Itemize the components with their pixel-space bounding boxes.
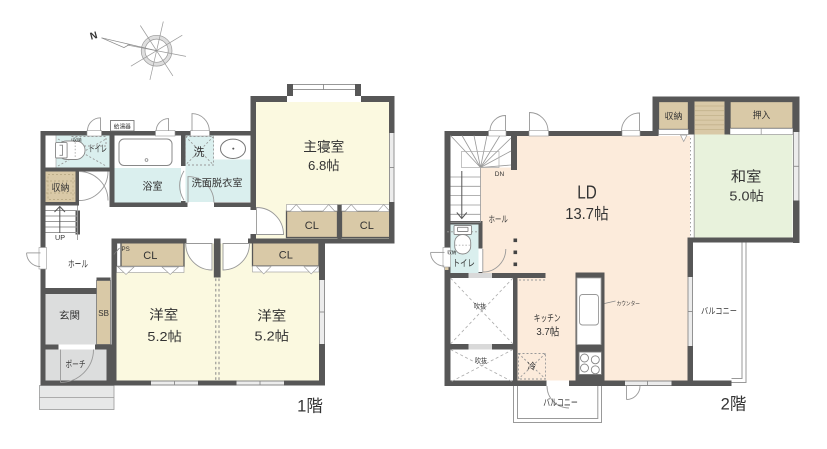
svg-text:CL: CL — [279, 249, 293, 261]
svg-text:カウンター: カウンター — [617, 300, 641, 308]
svg-text:玄関: 玄関 — [59, 309, 80, 322]
svg-text:2階: 2階 — [721, 394, 747, 413]
svg-text:洗: 洗 — [194, 145, 205, 158]
svg-text:DN: DN — [495, 171, 505, 178]
svg-text:洋室: 洋室 — [149, 306, 178, 322]
svg-text:冷: 冷 — [527, 360, 536, 371]
svg-text:収納: 収納 — [72, 137, 82, 144]
svg-text:CL: CL — [360, 220, 374, 232]
svg-text:バルコニー: バルコニー — [543, 398, 578, 409]
svg-text:ホール: ホール — [488, 214, 508, 224]
svg-text:押入: 押入 — [753, 109, 771, 121]
svg-text:トイレ: トイレ — [88, 144, 107, 155]
svg-text:洋室: 洋室 — [257, 307, 286, 323]
svg-text:3.7帖: 3.7帖 — [536, 325, 559, 338]
svg-text:主寝室: 主寝室 — [303, 138, 344, 154]
svg-text:吹抜: 吹抜 — [475, 356, 487, 365]
svg-text:ポーチ: ポーチ — [66, 359, 86, 369]
svg-text:LD: LD — [577, 181, 597, 202]
svg-text:SB: SB — [98, 309, 109, 318]
svg-text:5.2帖: 5.2帖 — [255, 328, 290, 343]
svg-text:バルコニー: バルコニー — [701, 306, 737, 316]
svg-text:5.2帖: 5.2帖 — [147, 329, 182, 344]
svg-text:和室: 和室 — [731, 169, 762, 185]
svg-text:吹抜: 吹抜 — [474, 301, 486, 310]
svg-text:1階: 1階 — [297, 396, 323, 415]
svg-text:5.0帖: 5.0帖 — [729, 188, 764, 203]
svg-text:UP: UP — [55, 233, 65, 242]
svg-text:トイレ: トイレ — [453, 259, 475, 270]
svg-text:給湯器: 給湯器 — [114, 123, 131, 131]
svg-text:収納: 収納 — [52, 182, 70, 194]
svg-text:収納: 収納 — [665, 111, 683, 121]
svg-text:浴室: 浴室 — [143, 179, 163, 192]
svg-text:6.8帖: 6.8帖 — [308, 158, 340, 173]
svg-text:13.7帖: 13.7帖 — [565, 205, 609, 223]
svg-text:PS: PS — [122, 246, 130, 253]
svg-text:CL: CL — [305, 220, 319, 232]
svg-text:キッチン: キッチン — [534, 313, 561, 324]
svg-text:収納: 収納 — [447, 249, 457, 256]
svg-text:CL: CL — [143, 250, 157, 262]
svg-text:洗面脱衣室: 洗面脱衣室 — [192, 177, 243, 190]
svg-text:ホール: ホール — [68, 259, 88, 270]
